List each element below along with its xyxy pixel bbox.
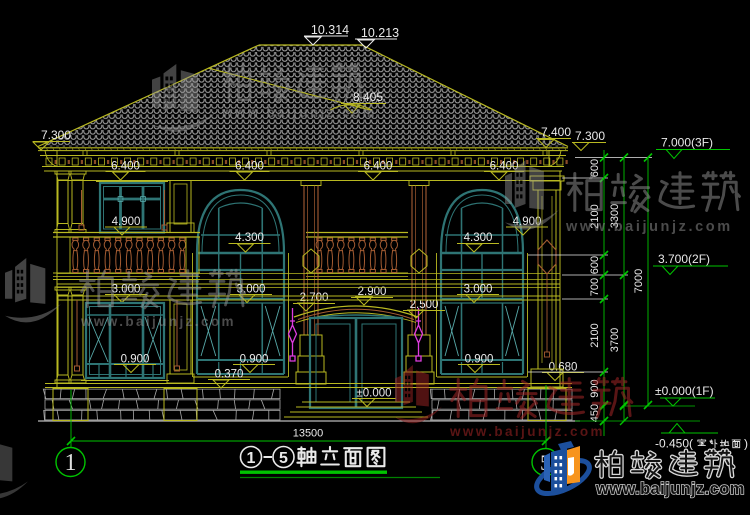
- svg-text:4.900: 4.900: [112, 216, 141, 228]
- svg-text:10.213: 10.213: [361, 26, 399, 40]
- svg-text:2100: 2100: [589, 323, 601, 347]
- svg-text:2.700: 2.700: [300, 292, 329, 304]
- svg-text:600: 600: [589, 159, 601, 177]
- svg-text:3.000: 3.000: [464, 284, 493, 296]
- svg-text:6.400: 6.400: [235, 161, 264, 173]
- svg-text:10.314: 10.314: [311, 23, 349, 37]
- svg-text:±0.000(1F): ±0.000(1F): [655, 384, 714, 398]
- svg-text:www.baijunjz.com: www.baijunjz.com: [449, 424, 605, 439]
- svg-text:5: 5: [279, 450, 288, 467]
- svg-text:www.baijunjz.com: www.baijunjz.com: [595, 480, 745, 498]
- svg-text:13500: 13500: [293, 428, 324, 440]
- svg-text:3.700(2F): 3.700(2F): [658, 252, 710, 266]
- svg-text:8.405: 8.405: [353, 90, 383, 104]
- svg-text:7.000(3F): 7.000(3F): [661, 136, 713, 150]
- svg-text:6.400: 6.400: [111, 161, 140, 173]
- svg-text:7.300: 7.300: [575, 129, 605, 143]
- svg-text:700: 700: [589, 278, 601, 296]
- svg-text:3700: 3700: [609, 328, 621, 352]
- svg-text:6.400: 6.400: [490, 161, 519, 173]
- svg-text:7.400: 7.400: [541, 125, 571, 139]
- svg-text:600: 600: [589, 256, 601, 274]
- svg-text:www.baijunjz.com: www.baijunjz.com: [80, 314, 236, 329]
- svg-text:4.300: 4.300: [235, 232, 264, 244]
- svg-text:www.baijunjz.com: www.baijunjz.com: [221, 105, 377, 120]
- svg-text:7.300: 7.300: [41, 128, 71, 142]
- svg-text:0.900: 0.900: [465, 354, 494, 366]
- svg-text:6.400: 6.400: [364, 161, 393, 173]
- svg-text:0.370: 0.370: [215, 369, 244, 381]
- svg-text:7000: 7000: [633, 269, 645, 293]
- svg-text:): ): [744, 437, 748, 451]
- svg-text:1: 1: [65, 450, 77, 476]
- svg-text:-0.450(: -0.450(: [655, 437, 693, 451]
- svg-text:2.500: 2.500: [410, 299, 439, 311]
- svg-text:www.baijunjz.com: www.baijunjz.com: [565, 219, 733, 235]
- svg-text:4.300: 4.300: [464, 232, 493, 244]
- svg-text:0.900: 0.900: [121, 354, 150, 366]
- svg-text:±0.000: ±0.000: [356, 388, 391, 400]
- svg-text:1: 1: [247, 450, 256, 467]
- svg-text:0.900: 0.900: [240, 354, 269, 366]
